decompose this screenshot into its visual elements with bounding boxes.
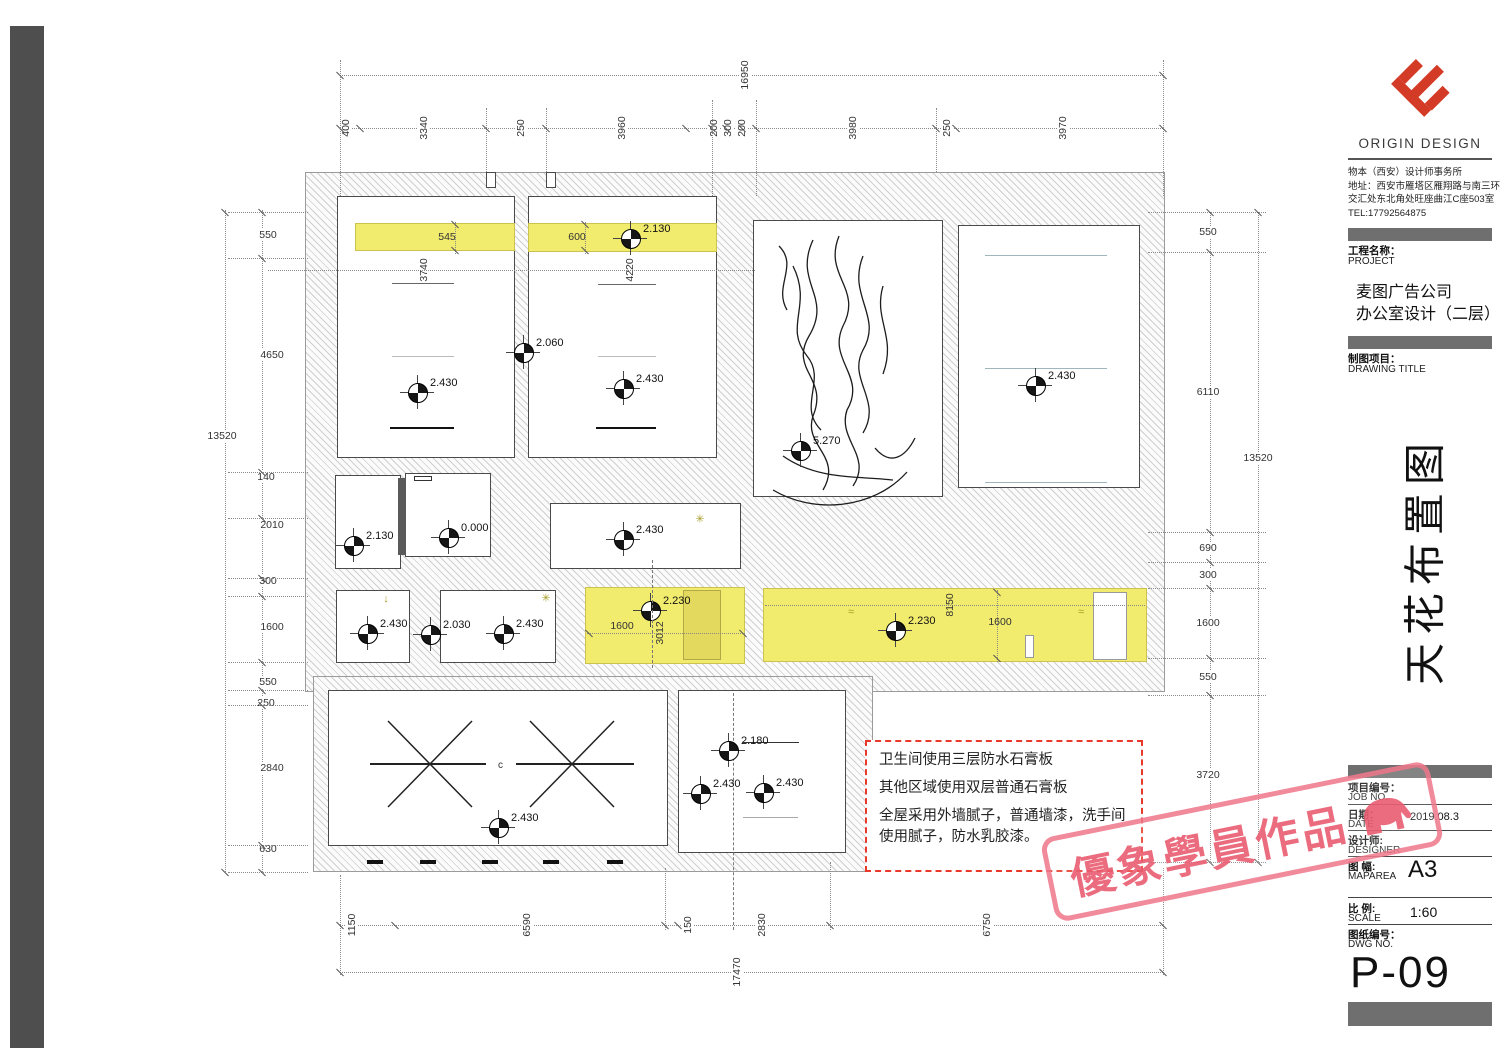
company-line: 物本（西安）设计师事务所 <box>1348 166 1500 180</box>
symbol-glyph: ✳ <box>695 513 704 526</box>
company-line: 地址：西安市雁塔区雁翔路与南三环 <box>1348 180 1500 194</box>
project-name: 麦图广告公司 <box>1356 278 1452 302</box>
dimension-label: 6110 <box>1195 386 1222 398</box>
dimension-label: 1150 <box>346 912 358 939</box>
dimension-label: 1600 <box>610 620 633 632</box>
extension-line <box>546 108 547 172</box>
room <box>678 690 846 853</box>
extension-line <box>712 100 713 196</box>
section-bar <box>1348 228 1492 241</box>
ceiling-fixture-line <box>743 817 798 818</box>
door-opening <box>1093 592 1127 660</box>
extension-line <box>228 578 308 579</box>
ceiling-lamp <box>482 860 498 864</box>
center-label: c <box>498 760 503 771</box>
symbol-glyph: ≈ <box>848 606 854 618</box>
dimension-label: 2010 <box>258 519 285 531</box>
extension-line <box>228 845 308 846</box>
note-line: 卫生间使用三层防水石膏板 <box>879 750 1129 771</box>
extension-line <box>486 108 487 172</box>
dimension-label: 400 <box>340 117 352 139</box>
drawing-title-label-en: DRAWING TITLE <box>1348 364 1426 375</box>
ceiling-fixture-line <box>392 283 454 284</box>
ceiling-cross-pattern: c <box>368 688 638 838</box>
decor-branch-art <box>755 228 930 513</box>
ceiling-fixture-line <box>985 482 1107 483</box>
dimension-line <box>268 270 755 271</box>
divider <box>1348 158 1492 160</box>
ceiling-fixture-line <box>598 284 656 285</box>
extension-line <box>228 690 308 691</box>
scale-value: 1:60 <box>1410 904 1437 920</box>
dwg-no-value: P-09 <box>1350 948 1451 998</box>
dimension-line <box>340 972 1163 973</box>
extension-line <box>936 108 937 172</box>
dimension-label: 3012 <box>654 621 666 644</box>
brand-name: ORIGIN DESIGN <box>1348 136 1492 151</box>
dimension-label: 300 <box>1197 569 1219 581</box>
dimension-line <box>340 925 1163 926</box>
ceiling-lamp <box>420 860 436 864</box>
extension-line <box>1148 212 1266 213</box>
wall-notch <box>486 172 496 188</box>
switch-box <box>414 476 432 481</box>
ceiling-fixture-line <box>392 356 454 357</box>
dimension-label: 690 <box>1197 542 1219 554</box>
dimension-label: 550 <box>1197 671 1219 683</box>
extension-line <box>665 868 666 930</box>
dimension-line <box>1258 212 1259 862</box>
dimension-label: 3970 <box>1057 114 1069 141</box>
dimension-label: 8150 <box>944 593 956 616</box>
section-bar <box>1348 336 1492 349</box>
dimension-label: 3960 <box>616 114 628 141</box>
extension-line <box>228 518 308 519</box>
extension-line <box>830 862 831 930</box>
dimension-label: 3340 <box>418 114 430 141</box>
dimension-label: 3720 <box>1194 769 1221 781</box>
dimension-label: 17470 <box>731 955 743 988</box>
extension-line <box>1148 562 1266 563</box>
extension-line <box>1148 252 1266 253</box>
dimension-label: 4650 <box>258 349 285 361</box>
ceiling-lamp <box>607 860 623 864</box>
dimension-line <box>1210 212 1211 862</box>
dimension-label: 545 <box>438 231 456 243</box>
symbol-glyph: ≈ <box>1078 606 1084 618</box>
extension-line <box>228 472 308 473</box>
extension-line <box>1148 588 1266 589</box>
ceiling-lamp <box>543 860 559 864</box>
company-info: 物本（西安）设计师事务所 地址：西安市雁塔区雁翔路与南三环 交汇处东北角处旺座曲… <box>1348 166 1500 220</box>
ceiling-fixture-line <box>596 427 656 429</box>
divider <box>1348 897 1492 898</box>
note-line: 其他区域使用双层普通石膏板 <box>879 778 1129 799</box>
dimension-label: 250 <box>941 117 953 139</box>
dimension-label: 1600 <box>988 616 1011 628</box>
dimension-line <box>225 210 226 872</box>
ceiling-fixture-line <box>598 356 656 357</box>
company-line: 交汇处东北角处旺座曲江C座503室 <box>1348 193 1500 207</box>
dimension-line <box>652 560 653 668</box>
extension-line <box>228 258 308 259</box>
dimension-label: 550 <box>257 229 279 241</box>
divider <box>1348 924 1492 925</box>
dimension-label: 3740 <box>418 258 430 281</box>
symbol-glyph: ↓ <box>383 593 389 605</box>
elephant-icon <box>1354 786 1417 838</box>
drawing-sheet: c ↓ ✳ ≈ ≈ ✳ 2.130 2.060 2.430 2.430 2.43… <box>0 0 1500 1061</box>
ceiling-fixture-line <box>985 368 1107 369</box>
map-area-label-en: MAPAREA <box>1348 871 1396 882</box>
extension-line <box>228 212 308 213</box>
room <box>550 503 741 569</box>
extension-line <box>228 596 308 597</box>
scale-label-en: SCALE <box>1348 913 1381 924</box>
symbol-glyph: ✳ <box>541 592 550 605</box>
dimension-label: 1600 <box>1194 617 1221 629</box>
origin-design-logo-icon <box>1376 42 1466 132</box>
dimension-line <box>340 128 1163 129</box>
drawing-title-vertical: 天花布置图 <box>1392 435 1453 685</box>
dimension-label: 250 <box>515 117 527 139</box>
company-line: TEL:17792564875 <box>1348 207 1500 221</box>
project-name: 办公室设计（二层） <box>1356 300 1500 324</box>
extension-line <box>756 100 757 196</box>
dimension-label: 550 <box>257 676 279 688</box>
dimension-label: 6590 <box>521 911 533 938</box>
dimension-label: 6750 <box>981 911 993 938</box>
ceiling-highlight <box>355 223 515 251</box>
extension-line <box>228 662 308 663</box>
section-bar <box>1348 1002 1492 1026</box>
dimension-line <box>587 633 745 634</box>
extension-line <box>1148 532 1266 533</box>
dimension-label: 1600 <box>258 621 285 633</box>
dimension-label: 150 <box>682 914 694 936</box>
door-panel <box>398 478 406 555</box>
project-label-en: PROJECT <box>1348 256 1395 267</box>
dimension-line <box>340 75 1163 76</box>
ceiling-lamp <box>367 860 383 864</box>
map-area-value: A3 <box>1408 856 1437 884</box>
extension-line <box>1148 658 1266 659</box>
ceiling-fixture-line <box>985 255 1107 256</box>
dimension-label: 3980 <box>847 114 859 141</box>
room-divider-line <box>733 693 734 930</box>
wall-notch <box>546 172 556 188</box>
room <box>958 225 1140 488</box>
wall-slot <box>1025 635 1034 658</box>
dimension-label: 600 <box>568 231 586 243</box>
dimension-label: 550 <box>1197 226 1219 238</box>
extension-line <box>228 872 308 873</box>
dimension-label: 16950 <box>739 58 751 91</box>
dimension-label: 4220 <box>624 258 636 281</box>
extension-line <box>1148 695 1266 696</box>
sheet-left-strip <box>10 26 44 1048</box>
ceiling-fixture-line <box>390 427 454 429</box>
dimension-label: 2830 <box>756 911 768 938</box>
dimension-label: 13520 <box>205 430 238 442</box>
room <box>335 475 401 569</box>
dimension-label: 13520 <box>1241 452 1274 464</box>
extension-line <box>228 705 308 706</box>
dimension-label: 2840 <box>258 762 285 774</box>
